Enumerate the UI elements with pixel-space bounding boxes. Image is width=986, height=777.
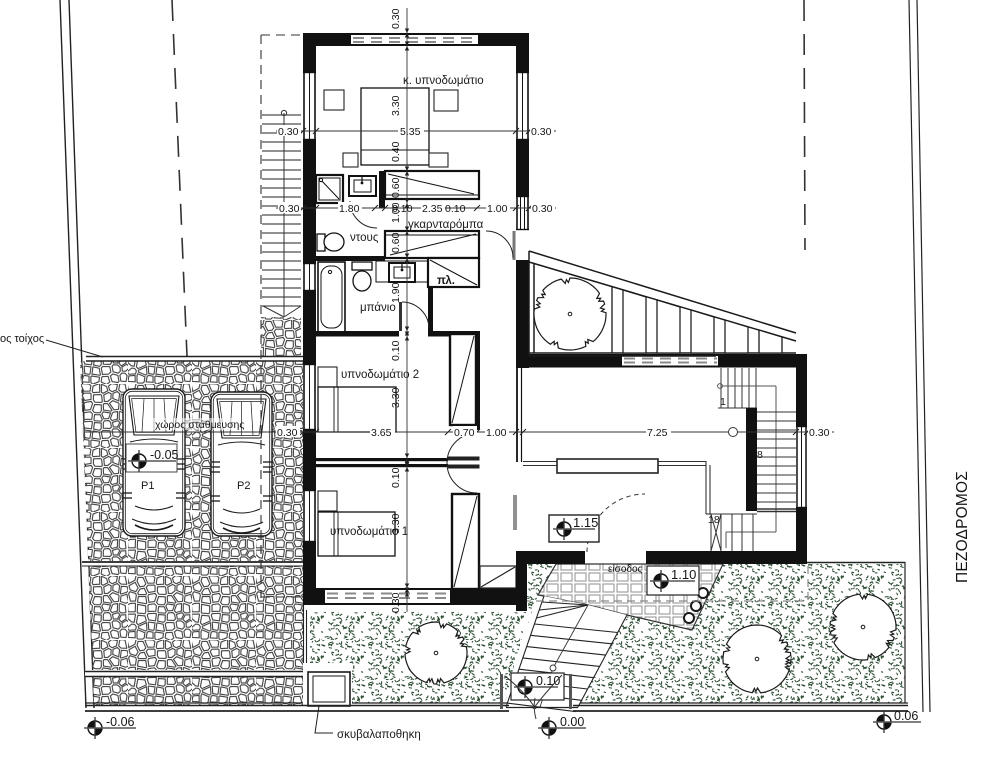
svg-text:5.35: 5.35 <box>400 126 421 138</box>
svg-text:0.30: 0.30 <box>390 592 402 613</box>
svg-text:P2: P2 <box>237 480 250 492</box>
svg-text:1.00: 1.00 <box>486 427 507 439</box>
svg-text:0.30: 0.30 <box>278 126 299 138</box>
svg-text:ντους: ντους <box>350 232 379 244</box>
svg-text:1.15: 1.15 <box>573 515 598 530</box>
svg-text:18: 18 <box>708 514 720 526</box>
svg-text:ΠΕΖΟΔΡΟΜΟΣ: ΠΕΖΟΔΡΟΜΟΣ <box>954 471 971 583</box>
svg-text:P1: P1 <box>141 480 154 492</box>
svg-text:1.10: 1.10 <box>671 567 696 582</box>
svg-text:0.30: 0.30 <box>390 8 402 29</box>
svg-text:σκυβαλαποθηκη: σκυβαλαποθηκη <box>337 729 421 741</box>
svg-text:γκαρνταρόμπα: γκαρνταρόμπα <box>408 219 484 231</box>
svg-text:8: 8 <box>757 449 763 461</box>
svg-text:0.40: 0.40 <box>390 141 402 162</box>
svg-text:2.35: 2.35 <box>422 203 443 215</box>
svg-text:0.06: 0.06 <box>894 709 918 723</box>
svg-text:1.90: 1.90 <box>390 282 402 303</box>
svg-text:0.00: 0.00 <box>560 715 584 729</box>
svg-text:0.10: 0.10 <box>390 340 402 361</box>
svg-text:χώρος στάθμευσης: χώρος στάθμευσης <box>155 419 244 431</box>
svg-text:πλ.: πλ. <box>437 275 455 287</box>
svg-text:1: 1 <box>720 396 726 408</box>
svg-text:0.30: 0.30 <box>532 203 553 215</box>
svg-text:-0.06: -0.06 <box>106 715 135 729</box>
svg-text:0.30: 0.30 <box>279 203 300 215</box>
svg-text:0.70: 0.70 <box>454 427 475 439</box>
svg-text:1.00: 1.00 <box>390 202 402 223</box>
svg-text:3.65: 3.65 <box>371 427 392 439</box>
svg-text:0.10: 0.10 <box>445 203 466 215</box>
svg-text:0.30: 0.30 <box>809 427 830 439</box>
svg-text:1.80: 1.80 <box>339 203 360 215</box>
svg-text:-0.05: -0.05 <box>150 448 179 462</box>
svg-text:ος τοίχος: ος τοίχος <box>0 333 44 345</box>
svg-text:είσοδος: είσοδος <box>608 563 643 575</box>
svg-text:1.00: 1.00 <box>487 203 508 215</box>
svg-text:κ. υπνοδωμάτιο: κ. υπνοδωμάτιο <box>403 75 484 87</box>
svg-text:3.30: 3.30 <box>390 513 402 534</box>
svg-text:0.30: 0.30 <box>277 427 298 439</box>
svg-text:7.25: 7.25 <box>647 427 668 439</box>
svg-text:0.60: 0.60 <box>390 177 402 198</box>
svg-text:3.30: 3.30 <box>390 387 402 408</box>
svg-text:0.30: 0.30 <box>531 126 552 138</box>
svg-text:0.10: 0.10 <box>390 467 402 488</box>
svg-text:0.60: 0.60 <box>390 232 402 253</box>
svg-text:3.30: 3.30 <box>390 95 402 116</box>
